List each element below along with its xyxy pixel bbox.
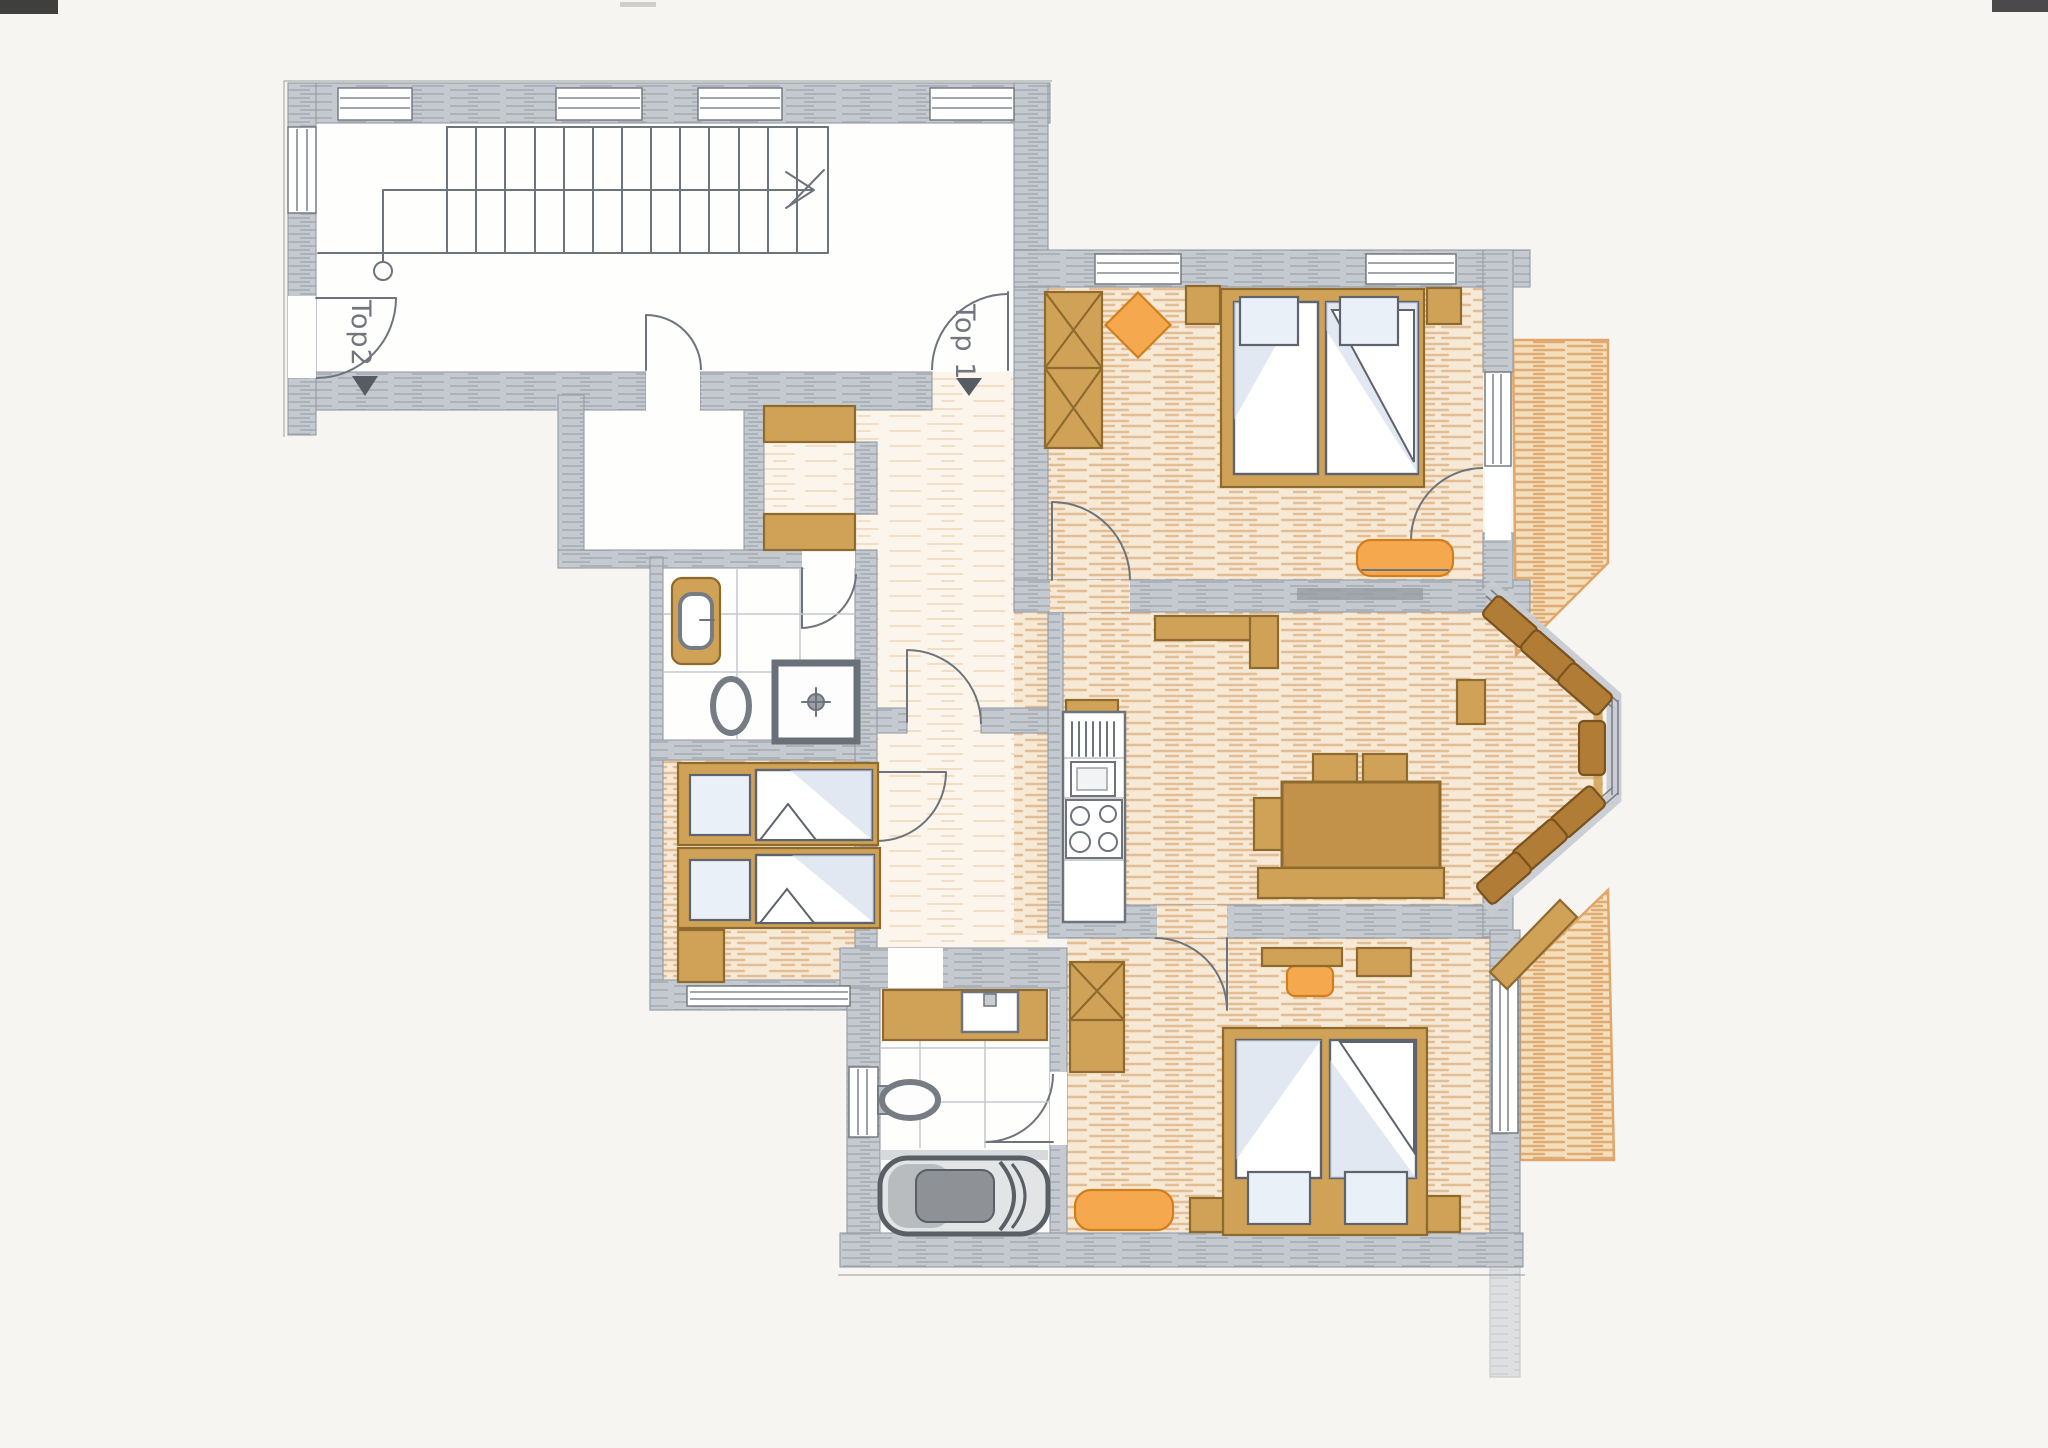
stairwell-floor	[316, 123, 1014, 372]
toilet	[878, 1082, 938, 1118]
entrance-label-top1: Top 1	[949, 303, 980, 380]
bedroom-topright-right-wall	[1483, 250, 1513, 372]
wardrobe	[1070, 962, 1124, 1072]
vanity-sink	[883, 990, 1047, 1040]
wardrobe	[1045, 292, 1102, 448]
bench-seat	[1075, 1190, 1173, 1230]
kitchen-counter	[1063, 700, 1125, 922]
garden-wall-stub	[1490, 1267, 1520, 1377]
hall-living-wall	[1014, 83, 1048, 610]
floor-plan-page: Top2 Top 1	[0, 0, 2048, 1448]
sideboard	[1262, 948, 1342, 966]
single-bed	[678, 848, 880, 928]
cabinet	[1250, 616, 1278, 668]
cabinet	[678, 930, 724, 982]
nightstand	[1190, 1198, 1223, 1232]
nightstand	[1427, 288, 1461, 324]
pillow	[1248, 1172, 1310, 1224]
dining-bench	[1258, 868, 1444, 898]
dish-rack	[1072, 722, 1114, 756]
vanity-sink	[672, 578, 720, 664]
storage-outer-wall	[558, 395, 584, 568]
bedroom-bottom-window	[1492, 980, 1518, 1133]
double-bed	[1223, 1028, 1427, 1235]
outer-left-wall	[650, 557, 663, 1010]
side-table	[1457, 680, 1485, 724]
double-bed	[1221, 289, 1424, 487]
stool	[1287, 966, 1333, 996]
glazed-partition	[1297, 588, 1423, 600]
scan-artifacts	[0, 0, 2048, 14]
single-bed	[678, 763, 878, 845]
chair	[1313, 754, 1357, 784]
bedroom-left-window	[687, 986, 850, 1006]
chair	[1254, 798, 1284, 850]
hall-cupboard	[764, 514, 855, 550]
hall-cupboard	[764, 406, 855, 442]
kitchen-side-wall	[1048, 612, 1063, 905]
stove	[1066, 800, 1122, 858]
shower	[775, 663, 857, 741]
carport	[880, 1150, 1048, 1234]
bay-pier-top	[1483, 533, 1513, 588]
pillow	[690, 860, 750, 920]
storage-room-floor	[584, 410, 744, 550]
car	[880, 1158, 1048, 1234]
corridor-bottom-wall-right	[700, 372, 932, 410]
storage-bottom-wall	[558, 550, 804, 568]
side-window	[849, 1067, 878, 1137]
hall-door-stub-left	[877, 708, 907, 733]
hall-niche-stub	[855, 442, 877, 514]
nightstand	[1427, 1196, 1460, 1232]
bathroom2-top-wall	[840, 948, 1067, 988]
hall-door-stub-right	[981, 708, 1048, 733]
pillow	[690, 775, 750, 835]
entrance-label-top2: Top2	[345, 299, 376, 367]
pillow	[1340, 297, 1398, 345]
bench-seat	[1357, 540, 1453, 576]
pillow	[1240, 297, 1298, 345]
sideboard	[1357, 948, 1411, 976]
toilet	[713, 679, 749, 733]
chair	[1363, 754, 1407, 784]
pillow	[1345, 1172, 1407, 1224]
floor-plan-drawing: Top2 Top 1	[0, 0, 2048, 1448]
nightstand	[1186, 286, 1220, 324]
kitchen-sink	[1071, 762, 1115, 796]
building-bottom-wall	[840, 1233, 1523, 1267]
dining-table	[1282, 782, 1440, 868]
storage-right-wall	[744, 410, 764, 550]
